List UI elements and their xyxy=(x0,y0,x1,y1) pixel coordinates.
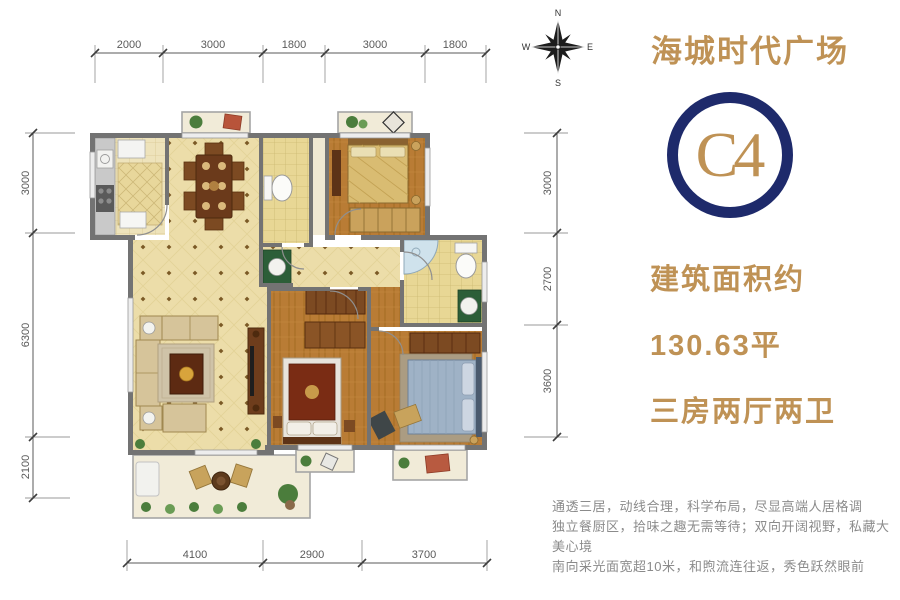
dim-label: 6300 xyxy=(20,323,32,347)
nightstand xyxy=(273,416,282,428)
description-line: 南向采光面宽超10米，和煦流连往返，秀色跃然眼前 xyxy=(552,557,900,577)
dimension-bottom: 4100 2900 3700 xyxy=(123,540,491,571)
toilet xyxy=(272,175,292,201)
toilet xyxy=(456,254,476,278)
dim-label: 1800 xyxy=(443,39,467,51)
unit-info: 建筑面积约 130.63平 三房两厅两卫 xyxy=(650,256,836,454)
side-lamp xyxy=(143,322,155,334)
layout-type: 三房两厅两卫 xyxy=(650,388,836,430)
headboard xyxy=(283,437,341,444)
dimension-left: 3000 6300 2100 xyxy=(20,129,75,502)
armchair xyxy=(163,404,206,432)
project-title: 海城时代广场 xyxy=(638,26,862,71)
dim-label: 3000 xyxy=(201,39,225,51)
compass-north-label: N xyxy=(555,8,562,18)
duct-shaft xyxy=(313,138,325,235)
dim-label: 4100 xyxy=(183,549,207,561)
master-entry-floor xyxy=(371,287,404,327)
dim-label: 3000 xyxy=(20,171,32,195)
compass-west-label: W xyxy=(522,42,531,52)
description-line: 通透三居，动线合理，科学布局，尽显高端人居格调 xyxy=(552,497,900,517)
dim-label: 2900 xyxy=(300,549,324,561)
dim-label: 2100 xyxy=(20,455,32,479)
kitchen-table xyxy=(120,212,146,228)
balcony-door xyxy=(195,450,257,455)
stove xyxy=(96,185,114,212)
fridge xyxy=(118,140,145,158)
dim-label: 2000 xyxy=(117,39,141,51)
floorplan-flyer: 2000 3000 1800 3000 1800 3000 6300 2100 … xyxy=(0,0,900,600)
unit-code: C4 xyxy=(696,123,765,187)
dimension-right: 3000 2700 3600 xyxy=(524,129,568,441)
dimension-top: 2000 3000 1800 3000 1800 xyxy=(91,39,490,83)
tv xyxy=(250,346,254,396)
dresser xyxy=(332,150,341,196)
description-line: 独立餐厨区，拾味之趣无需等待；双向开阔视野，私藏大美心境 xyxy=(552,517,900,557)
kitchen-sink xyxy=(97,150,113,168)
wardrobe xyxy=(350,208,420,232)
dim-label: 2700 xyxy=(542,267,554,291)
headboard xyxy=(476,357,482,437)
area-label: 建筑面积约 xyxy=(650,256,836,298)
unit-badge: C4 xyxy=(667,92,793,218)
marketing-description: 通透三居，动线合理，科学布局，尽显高端人居格调 独立餐厨区，拾味之趣无需等待；双… xyxy=(552,497,900,577)
dim-label: 3000 xyxy=(542,171,554,195)
dim-label: 1800 xyxy=(282,39,306,51)
compass-east-label: E xyxy=(587,42,593,52)
compass-rose-icon: N E S W xyxy=(522,8,593,88)
dim-label: 3000 xyxy=(363,39,387,51)
compass-south-label: S xyxy=(555,78,561,88)
area-value: 130.63平 xyxy=(650,322,836,364)
plant xyxy=(135,439,145,449)
dim-label: 3600 xyxy=(542,369,554,393)
wardrobe xyxy=(410,333,480,353)
lounge xyxy=(136,462,159,496)
dim-label: 3700 xyxy=(412,549,436,561)
